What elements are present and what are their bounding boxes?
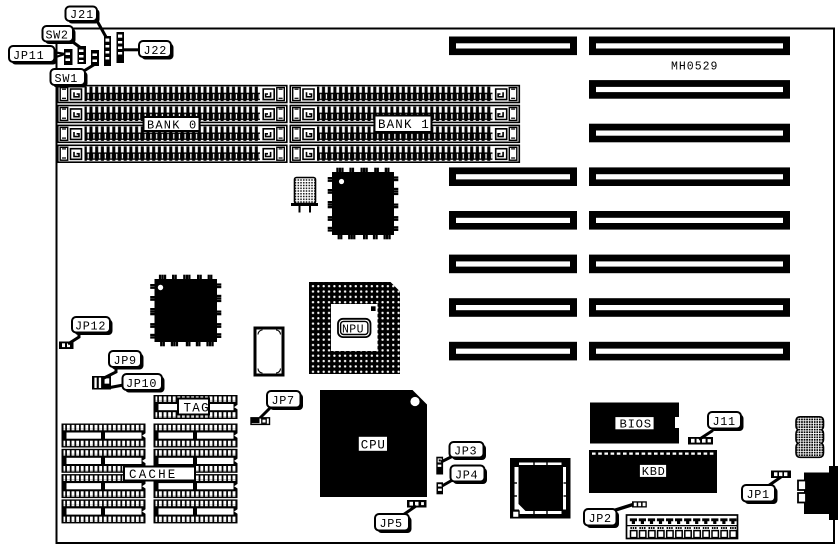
svg-text:SW2: SW2 <box>46 29 69 43</box>
svg-text:JP7: JP7 <box>272 394 295 408</box>
svg-text:JP5: JP5 <box>380 517 403 531</box>
svg-text:NPU: NPU <box>342 324 364 337</box>
svg-text:JP12: JP12 <box>75 320 106 334</box>
svg-text:CPU: CPU <box>361 438 386 452</box>
svg-text:CACHE: CACHE <box>129 468 178 482</box>
svg-text:JP1: JP1 <box>747 488 770 502</box>
svg-text:MH0529: MH0529 <box>671 61 718 74</box>
svg-text:BIOS: BIOS <box>620 418 652 432</box>
svg-text:JP4: JP4 <box>455 468 478 482</box>
svg-text:JP9: JP9 <box>114 354 137 368</box>
svg-text:KBD: KBD <box>642 465 666 479</box>
svg-text:JP3: JP3 <box>454 445 477 459</box>
svg-text:TAG: TAG <box>184 402 210 416</box>
svg-text:BANK 0: BANK 0 <box>147 118 197 132</box>
svg-text:BANK 1: BANK 1 <box>378 118 430 132</box>
svg-text:SW1: SW1 <box>55 72 79 86</box>
svg-text:J11: J11 <box>713 415 736 429</box>
svg-text:J22: J22 <box>144 44 168 58</box>
svg-text:JP2: JP2 <box>589 512 612 526</box>
svg-text:JP10: JP10 <box>126 377 157 391</box>
svg-text:J21: J21 <box>70 8 94 22</box>
svg-text:JP11: JP11 <box>13 49 45 63</box>
